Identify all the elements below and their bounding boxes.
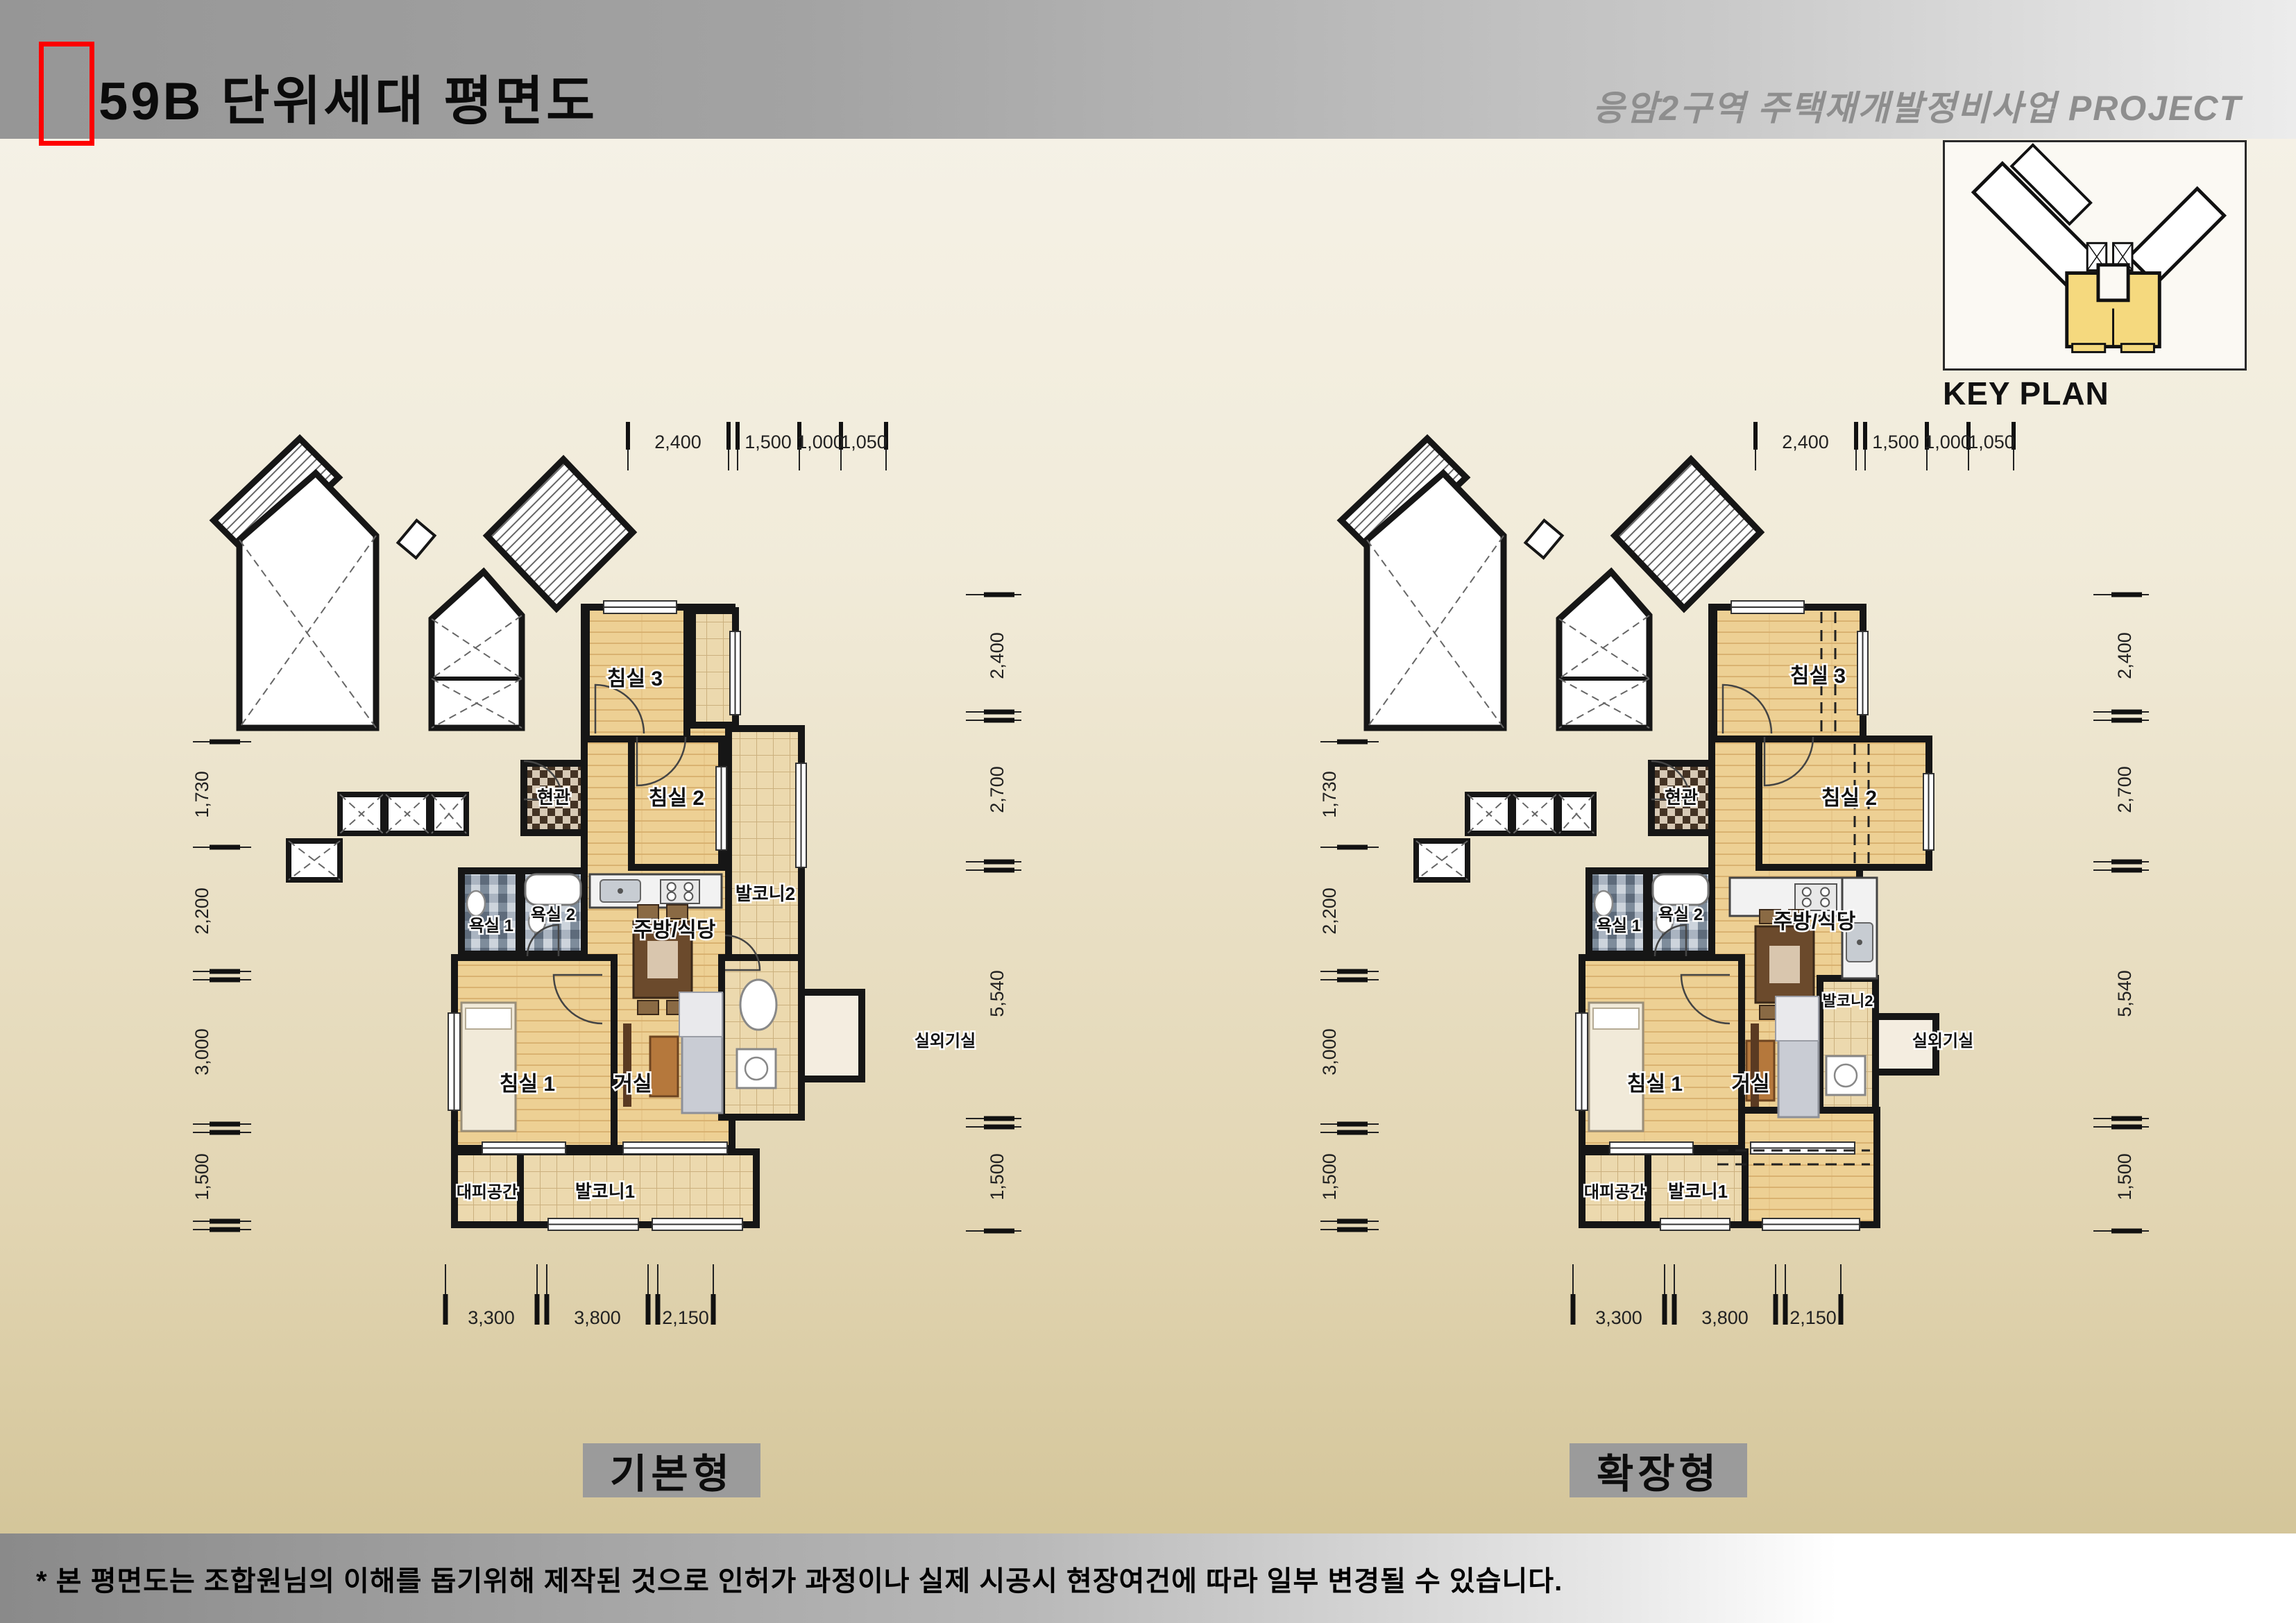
dimension-label: 1,500: [1319, 1153, 1340, 1200]
dimension-label: 3,300: [468, 1307, 515, 1328]
floor-plan-drawing-basic: 침실 3침실 2침실 1현관욕실 1욕실 2주방/식당거실발코니1발코니2대피공…: [173, 389, 1082, 1374]
header-bar: 59B 단위세대 평면도 응암2구역 주택재개발정비사업 PROJECT: [0, 0, 2296, 139]
plan-type-label-basic: 기본형: [583, 1443, 760, 1497]
dimension-label: 3,800: [1701, 1307, 1749, 1328]
floor-plan-drawing-extended: 침실 3침실 2침실 1현관욕실 1욕실 2주방/식당거실발코니1발코니2대피공…: [1301, 389, 2210, 1374]
room-label-living: 거실: [613, 1073, 652, 1096]
room-label-bedroom3: 침실 3: [1790, 665, 1846, 688]
dimension-label: 5,540: [987, 970, 1007, 1017]
floor-plan-basic: 침실 3침실 2침실 1현관욕실 1욕실 2주방/식당거실발코니1발코니2대피공…: [173, 389, 1082, 1374]
dimension-label: 2,200: [192, 887, 212, 935]
dimension-label: 2,200: [1319, 887, 1340, 935]
dimension-label: 3,800: [574, 1307, 621, 1328]
room-label-refuge: 대피공간: [457, 1183, 518, 1202]
dimension-label: 2,400: [987, 632, 1007, 679]
dimension-label: 1,050: [840, 432, 887, 452]
dimension-label: 3,000: [192, 1028, 212, 1076]
dimension-label: 1,500: [1872, 432, 1919, 452]
dimension-label: 2,150: [662, 1307, 709, 1328]
room-label-bedroom1: 침실 1: [500, 1073, 555, 1096]
page-title: 59B 단위세대 평면도: [99, 58, 597, 135]
dimension-label: 5,540: [2114, 970, 2135, 1017]
room-label-bath2: 욕실 2: [531, 906, 575, 924]
key-plan: [1943, 140, 2247, 371]
dimension-label: 1,500: [987, 1153, 1007, 1200]
dimension-label: 2,700: [987, 766, 1007, 813]
floor-plan-extended: 침실 3침실 2침실 1현관욕실 1욕실 2주방/식당거실발코니1발코니2대피공…: [1301, 389, 2210, 1374]
room-label-bedroom2: 침실 2: [649, 787, 704, 810]
dimension-label: 2,700: [2114, 766, 2135, 813]
dimension-label: 2,400: [1782, 432, 1829, 452]
slide: 59B 단위세대 평면도 응암2구역 주택재개발정비사업 PROJECT KEY…: [0, 0, 2296, 1623]
footnote-text: * 본 평면도는 조합원님의 이해를 돕기위해 제작된 것으로 인허가 과정이나…: [36, 1533, 1563, 1623]
dimension-label: 2,400: [2114, 632, 2135, 679]
dimension-label: 1,500: [2114, 1153, 2135, 1200]
dimension-label: 2,150: [1789, 1307, 1837, 1328]
room-label-living: 거실: [1731, 1073, 1769, 1096]
dimension-label: 1,730: [192, 771, 212, 818]
room-label-kitchen: 주방/식당: [1774, 910, 1856, 933]
room-label-balcony1: 발코니1: [575, 1181, 635, 1202]
dimension-label: 1,500: [745, 432, 792, 452]
dimension-label: 1,050: [1968, 432, 2015, 452]
dimension-label: 1,000: [797, 432, 844, 452]
title-marker-box: [39, 42, 94, 146]
dimension-label: 3,000: [1319, 1028, 1340, 1076]
room-label-bedroom2: 침실 2: [1821, 787, 1877, 810]
room-label-balcony2: 발코니2: [1823, 992, 1873, 1010]
room-label-bath2: 욕실 2: [1658, 906, 1703, 924]
room-label-balcony2: 발코니2: [735, 883, 795, 904]
room-label-ac-room: 실외기실: [915, 1032, 976, 1051]
key-plan-diagram: [1945, 142, 2245, 368]
room-label-entrance: 현관: [1665, 787, 1698, 808]
room-label-entrance: 현관: [537, 787, 570, 808]
room-label-bedroom3: 침실 3: [607, 668, 663, 690]
project-title: 응암2구역 주택재개발정비사업 PROJECT: [1592, 80, 2242, 130]
room-label-bedroom1: 침실 1: [1627, 1073, 1683, 1096]
room-label-ac-room: 실외기실: [1912, 1032, 1973, 1051]
footnote-bar: * 본 평면도는 조합원님의 이해를 돕기위해 제작된 것으로 인허가 과정이나…: [0, 1533, 2296, 1623]
dimension-label: 1,730: [1319, 771, 1340, 818]
room-label-refuge: 대피공간: [1584, 1183, 1645, 1202]
room-label-bath1: 욕실 1: [469, 917, 513, 935]
dimension-label: 1,500: [192, 1153, 212, 1200]
room-label-bath1: 욕실 1: [1597, 917, 1641, 935]
dimension-label: 1,000: [1924, 432, 1971, 452]
room-label-balcony1: 발코니1: [1668, 1181, 1728, 1202]
dimension-label: 3,300: [1595, 1307, 1642, 1328]
dimension-label: 2,400: [654, 432, 701, 452]
room-label-kitchen: 주방/식당: [633, 919, 716, 942]
plan-type-label-extended: 확장형: [1570, 1443, 1747, 1497]
